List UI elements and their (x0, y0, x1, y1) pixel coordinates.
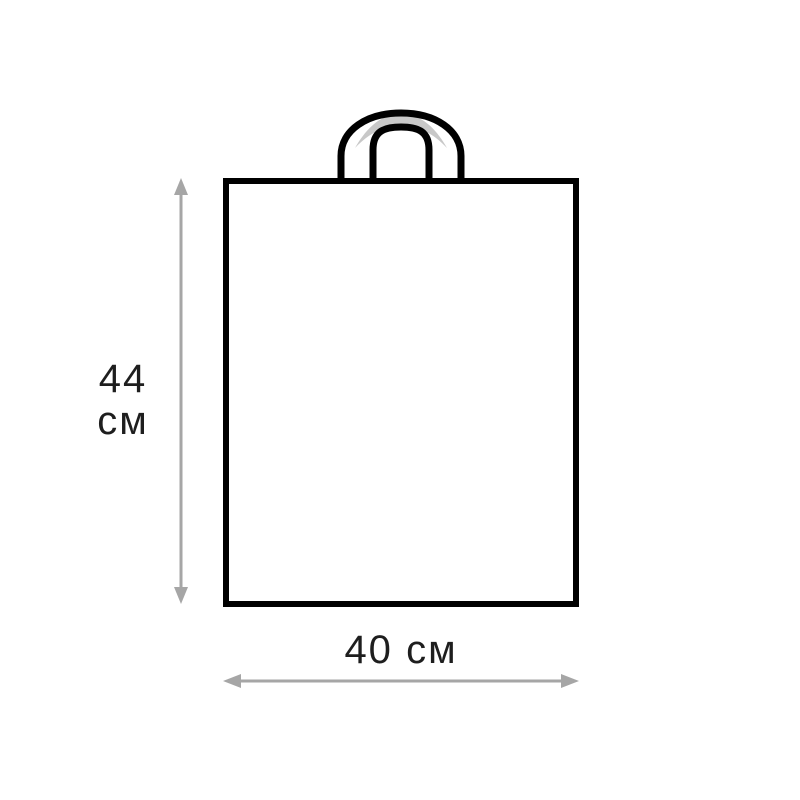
width-dimension-label: 40 см (250, 628, 552, 672)
width-unit: см (406, 628, 458, 672)
height-value: 44 (99, 358, 148, 400)
horizontal-arrow-head-left (223, 674, 241, 688)
dimension-diagram-canvas: 44 см 40 см (0, 0, 800, 800)
bag-handle-icon (331, 104, 471, 184)
handle-inner-arch (373, 127, 429, 184)
height-unit: см (97, 400, 149, 442)
vertical-arrow-head-top (174, 178, 188, 195)
vertical-arrow-head-bottom (174, 587, 188, 604)
shopping-bag-outline-icon (223, 178, 579, 607)
width-value: 40 (344, 628, 393, 672)
double-headed-horizontal-arrow-icon (223, 672, 579, 690)
height-dimension-label: 44 см (68, 358, 178, 442)
horizontal-arrow-head-right (561, 674, 579, 688)
